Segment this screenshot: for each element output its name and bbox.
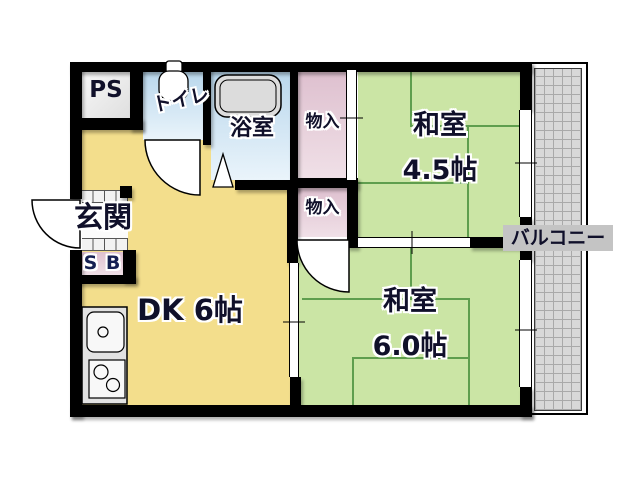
closet-upper-label: 物入: [296, 114, 349, 131]
washitsu-45-name-label: 和室: [370, 112, 510, 139]
bath-folding-door: [213, 154, 233, 187]
genkan-label: 玄関: [53, 203, 153, 232]
washitsu-60-name-label: 和室: [340, 288, 480, 315]
toilet-door-arc: [145, 140, 200, 195]
washitsu-60-size-label: 6.0帖: [340, 333, 480, 360]
washitsu-45-size-label: 4.5帖: [370, 157, 510, 184]
ps-label: PS: [82, 79, 130, 102]
shoebox-label: S B: [80, 254, 125, 273]
balcony-label-band: バルコニー: [503, 225, 613, 251]
bath-label: 浴室: [210, 118, 294, 140]
closet-door-arc: [297, 240, 349, 292]
floor-plan: バルコニー PS トイレ 浴室 物入 物入 和室 4.5帖 和室 6.0帖 DK…: [0, 0, 640, 480]
stove-icon: [89, 360, 125, 398]
balcony-label: バルコニー: [511, 229, 606, 248]
bathtub-inner-icon: [220, 80, 276, 112]
dk-label: DK 6帖: [110, 296, 270, 325]
faucet-icon: [98, 327, 108, 337]
closet-lower-label: 物入: [296, 200, 349, 217]
